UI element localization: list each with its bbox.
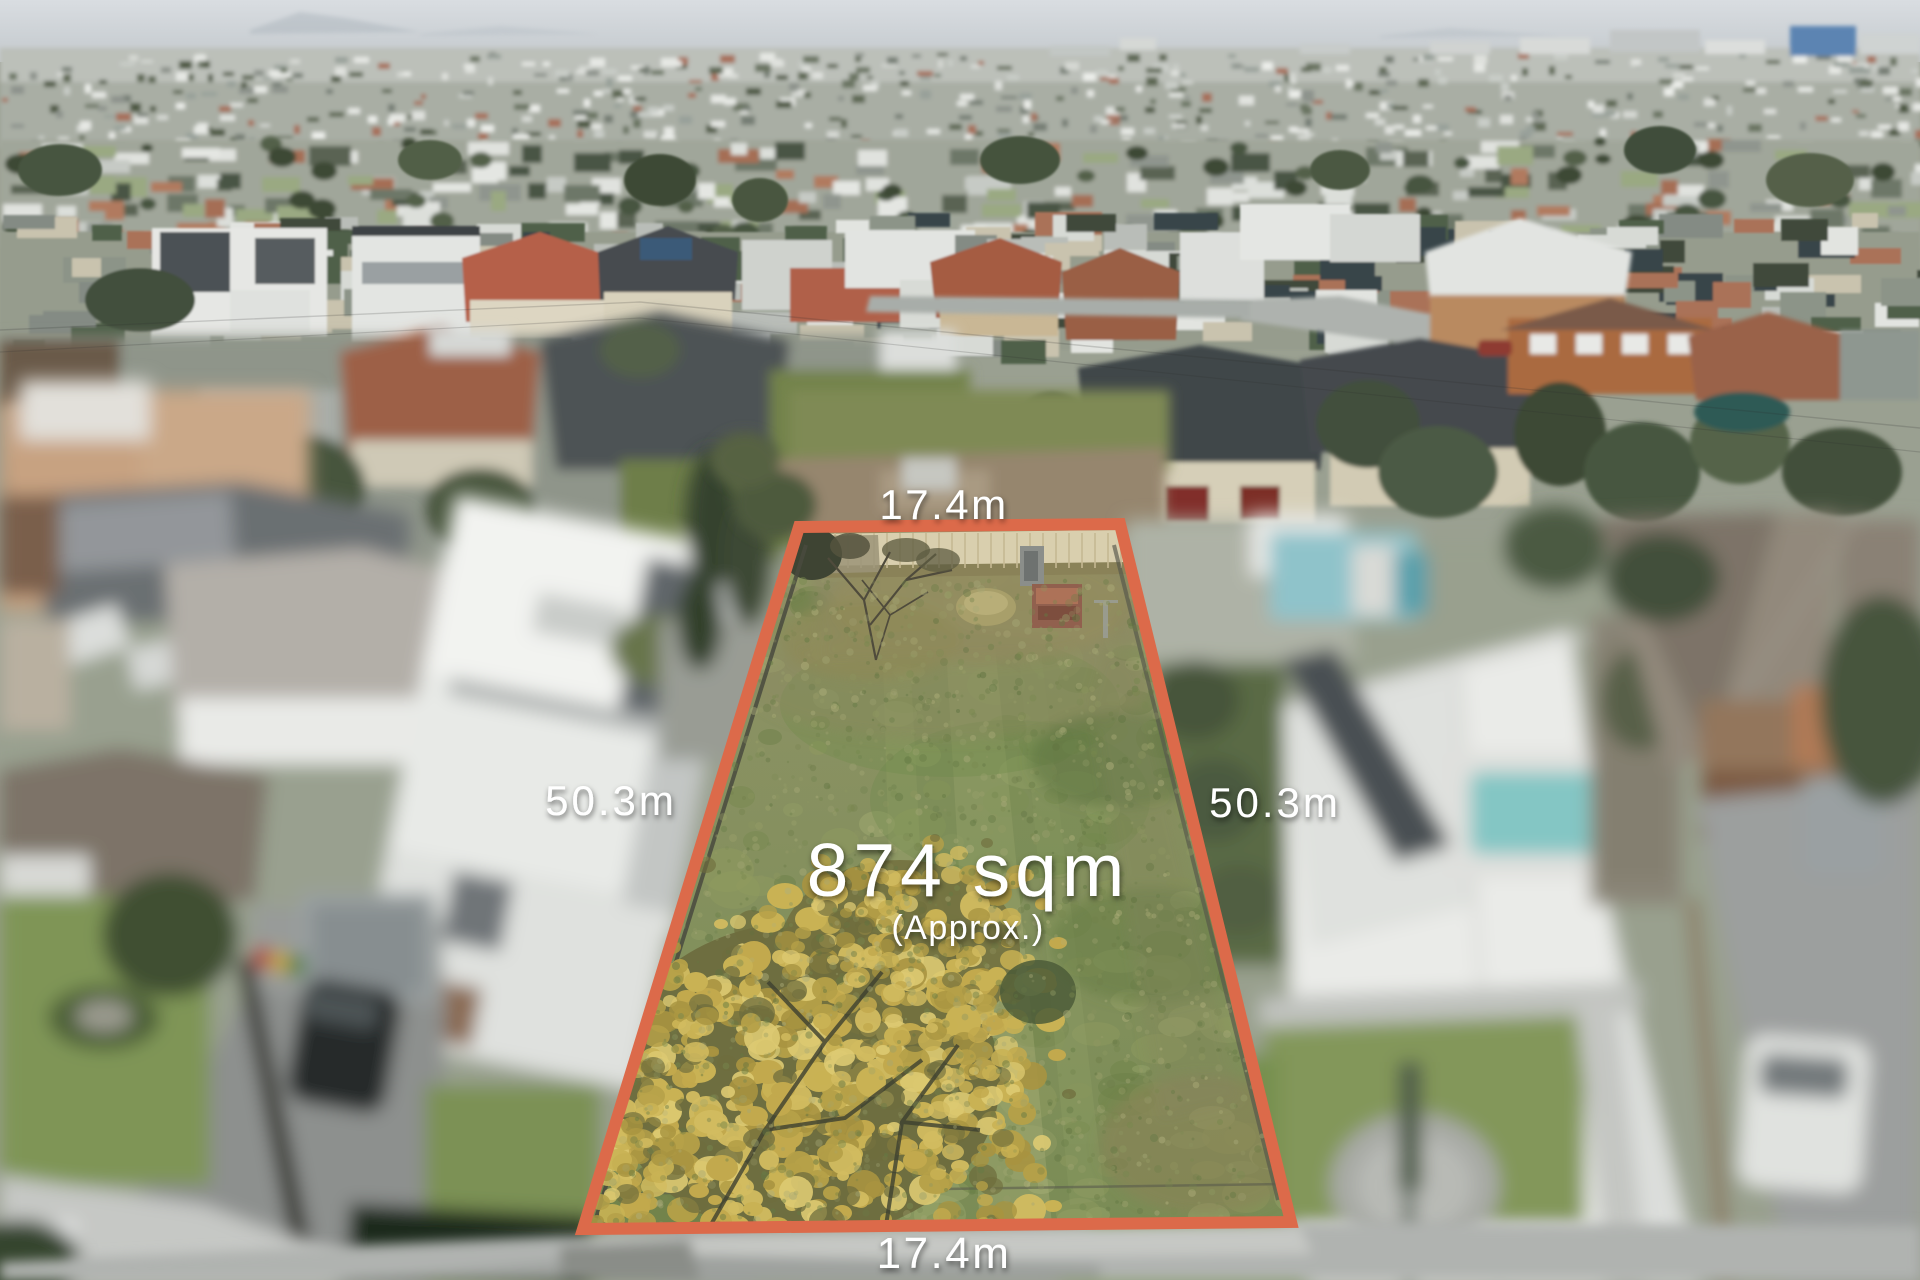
svg-text:17.4m: 17.4m [877,1229,1012,1278]
svg-text:(Approx.): (Approx.) [891,909,1044,947]
svg-text:50.3m: 50.3m [1209,779,1341,826]
svg-text:874 sqm: 874 sqm [807,828,1130,912]
svg-text:50.3m: 50.3m [545,777,677,824]
svg-text:17.4m: 17.4m [879,481,1008,528]
